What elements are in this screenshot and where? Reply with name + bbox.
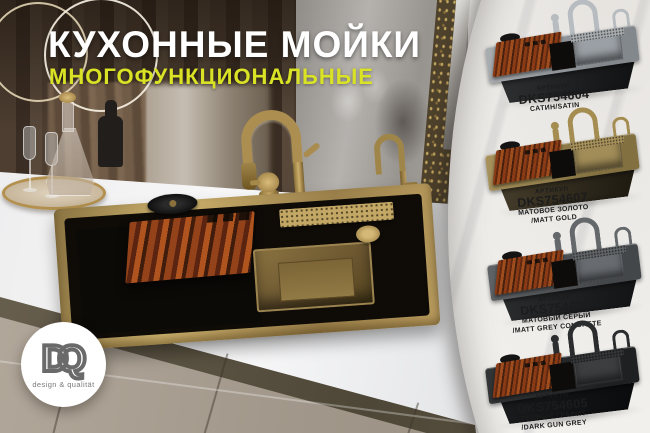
waterfall-outlet — [279, 202, 395, 228]
black-bottle — [98, 116, 123, 167]
wooden-cutting-board — [125, 212, 254, 284]
thumb-dark-basin — [549, 41, 576, 71]
sink-interior — [64, 194, 430, 341]
brand-initials: DQ — [42, 340, 76, 377]
glass-bowl — [23, 126, 36, 160]
gold-basin — [253, 241, 375, 313]
main-gold-sink — [54, 183, 441, 351]
glass-foot — [23, 188, 37, 192]
thumb-dark-basin — [551, 259, 578, 289]
gold-faucet-nozzle — [241, 162, 258, 190]
decanter-neck — [62, 102, 74, 132]
basin-bottom — [278, 258, 356, 303]
poster-title: КУХОННЫЕ МОЙКИ — [48, 24, 421, 66]
sink-promo-poster: КУХОННЫЕ МОЙКИ МНОГОФУНКЦИОНАЛЬНЫЕ DQ de… — [0, 0, 650, 433]
brand-tagline: design & qualität — [32, 380, 94, 389]
glass-stem — [29, 159, 31, 189]
poster-subtitle: МНОГОФУНКЦИОНАЛЬНЫЕ — [49, 64, 374, 90]
decanter-stopper — [59, 92, 76, 103]
thumb-dark-basin — [549, 149, 576, 179]
filter-faucet-arc — [373, 133, 406, 175]
thumb-dark-basin — [549, 362, 576, 392]
brand-logo-circle: DQ design & qualität — [21, 322, 106, 407]
